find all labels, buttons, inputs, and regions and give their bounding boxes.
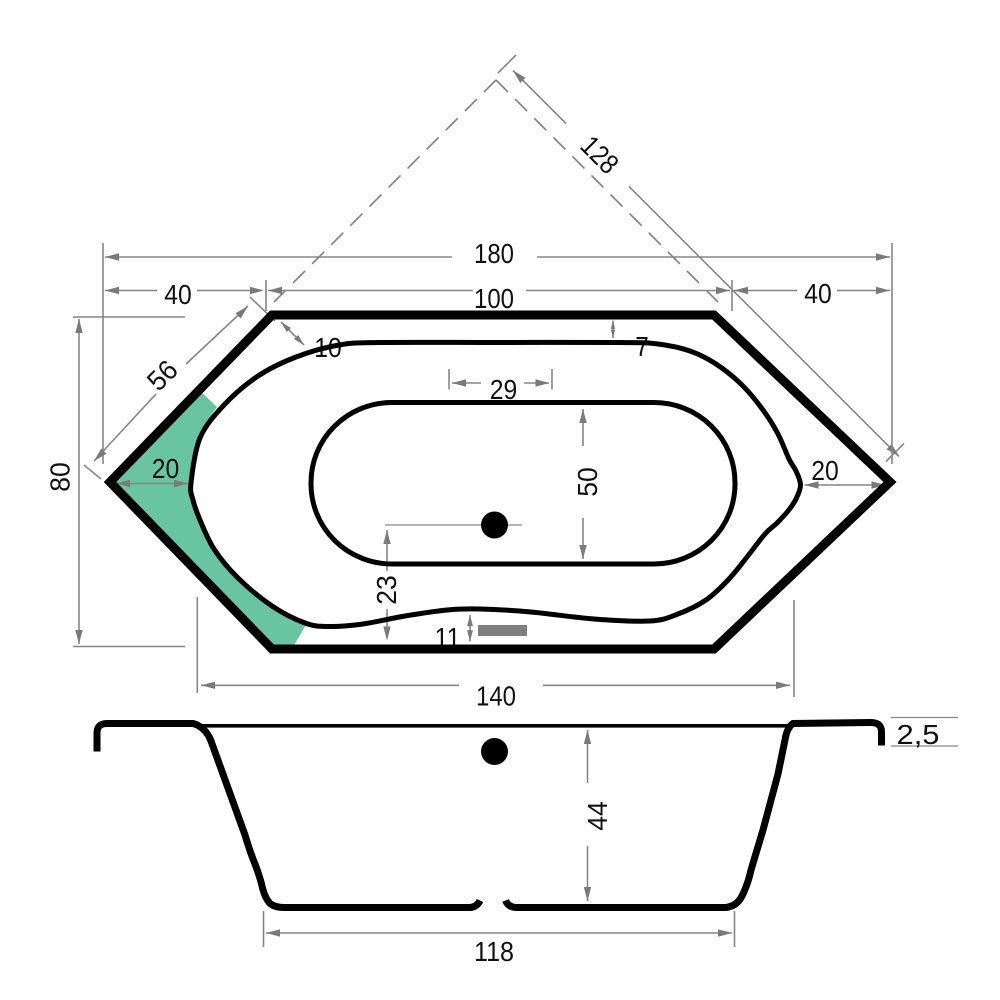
svg-text:2,5: 2,5: [897, 719, 940, 750]
svg-text:20: 20: [152, 453, 180, 484]
svg-text:40: 40: [804, 278, 832, 309]
svg-text:180: 180: [474, 238, 514, 269]
svg-text:80: 80: [45, 462, 76, 492]
svg-text:118: 118: [474, 936, 514, 967]
svg-text:7: 7: [635, 331, 649, 362]
svg-text:100: 100: [474, 283, 514, 314]
svg-text:40: 40: [164, 279, 192, 310]
svg-text:140: 140: [476, 681, 516, 712]
svg-text:50: 50: [572, 467, 603, 497]
svg-text:44: 44: [582, 801, 613, 831]
svg-text:23: 23: [371, 575, 402, 605]
svg-text:20: 20: [811, 455, 839, 486]
